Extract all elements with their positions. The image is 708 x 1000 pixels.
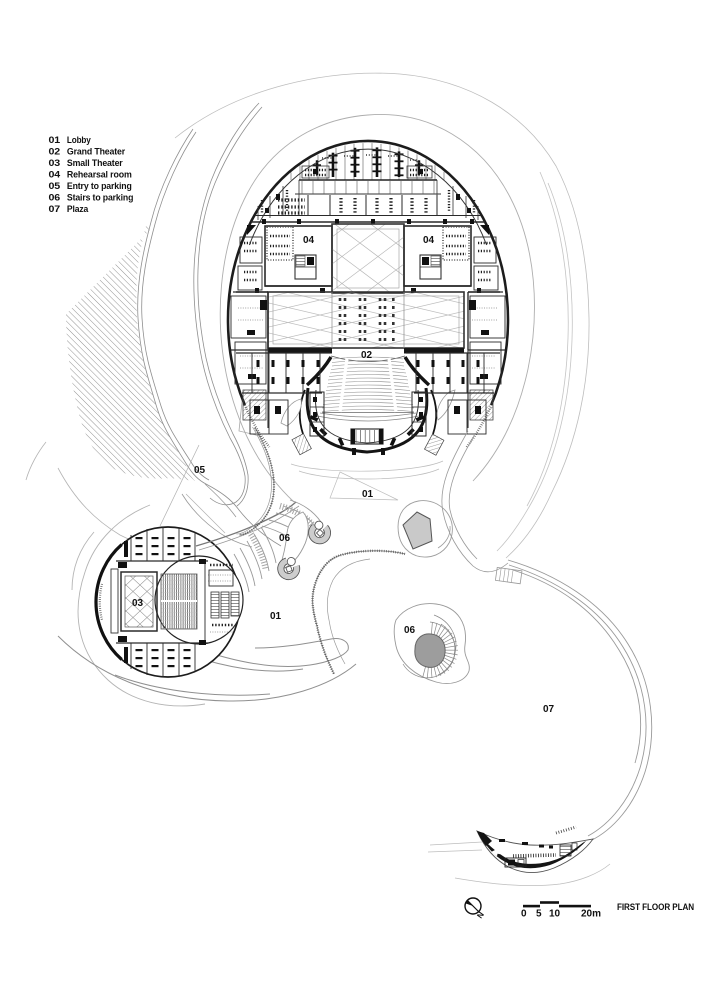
svg-text:01: 01 <box>362 489 374 500</box>
svg-text:Grand Theater: Grand Theater <box>67 147 126 157</box>
svg-text:Small Theater: Small Theater <box>67 158 123 168</box>
svg-text:06: 06 <box>49 192 61 202</box>
svg-text:01: 01 <box>270 611 282 622</box>
svg-text:04: 04 <box>49 170 62 180</box>
svg-text:Lobby: Lobby <box>67 135 92 145</box>
svg-text:0: 0 <box>521 909 527 920</box>
svg-text:05: 05 <box>49 181 61 191</box>
svg-text:07: 07 <box>49 204 61 214</box>
svg-text:02: 02 <box>361 350 373 361</box>
svg-text:03: 03 <box>49 158 61 168</box>
svg-text:04: 04 <box>423 235 435 246</box>
svg-text:02: 02 <box>49 147 61 157</box>
svg-text:01: 01 <box>49 135 61 145</box>
svg-text:5: 5 <box>536 909 542 920</box>
svg-text:06: 06 <box>404 625 416 636</box>
svg-text:07: 07 <box>543 704 555 715</box>
svg-text:Plaza: Plaza <box>67 204 89 214</box>
svg-text:05: 05 <box>194 465 206 476</box>
svg-text:03: 03 <box>132 598 144 609</box>
svg-text:10: 10 <box>549 909 561 920</box>
svg-text:04: 04 <box>303 235 315 246</box>
svg-text:Entry to parking: Entry to parking <box>67 181 132 191</box>
svg-text:FIRST FLOOR PLAN: FIRST FLOOR PLAN <box>617 902 694 913</box>
svg-text:06: 06 <box>279 533 291 544</box>
svg-text:20m: 20m <box>581 909 601 920</box>
svg-text:Stairs to parking: Stairs to parking <box>67 192 134 202</box>
svg-text:Rehearsal room: Rehearsal room <box>67 170 132 180</box>
